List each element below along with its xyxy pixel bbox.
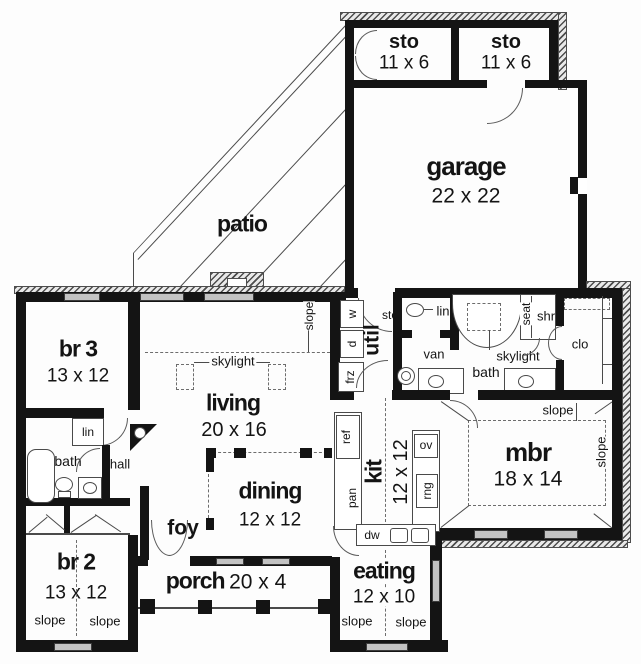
window <box>544 530 578 539</box>
pedestal-sink <box>406 303 424 317</box>
room-dims-garage: 22 x 22 <box>432 186 501 207</box>
room-dims-br3: 13 x 12 <box>47 367 109 386</box>
garage-service-door-gap <box>578 178 587 194</box>
patio-area <box>130 20 347 292</box>
ceiling-label-slope: slope <box>395 616 426 629</box>
bifold-door <box>71 515 97 533</box>
wall <box>140 486 149 560</box>
sink <box>428 375 444 388</box>
fixture-label-van: van <box>424 348 445 361</box>
room-label-bath-main: bath <box>470 365 501 379</box>
wall <box>549 20 558 88</box>
room-label-garage: garage <box>426 153 505 179</box>
wall <box>330 557 340 652</box>
porch-edge <box>138 607 336 609</box>
wall <box>345 20 354 298</box>
fixture-label-shr: shr <box>537 310 555 323</box>
patio-hatch-line <box>314 51 347 292</box>
door-arc <box>76 448 100 472</box>
wall <box>612 288 622 540</box>
tub-skylight-box <box>467 303 501 331</box>
bifold-door <box>46 514 65 530</box>
fixture-label-ref: ref <box>340 430 352 444</box>
porch-column <box>198 600 212 614</box>
fixture-label-pan: pan <box>346 488 358 508</box>
room-dims-mbr: 18 x 14 <box>494 469 563 490</box>
hatch-wall <box>622 288 631 543</box>
window <box>64 293 100 301</box>
fixture-label-seat: seat <box>520 303 532 326</box>
wall <box>345 288 358 298</box>
fixture-label-lin: lin <box>82 426 94 438</box>
fixture-label-lin: lin <box>436 305 449 318</box>
door-arc <box>487 88 523 124</box>
fireplace-circle <box>134 427 146 439</box>
ceiling-label-skylight: skylight <box>494 350 541 363</box>
fixture-label-sto: sto <box>382 309 398 321</box>
room-dims-living: 20 x 16 <box>201 420 267 440</box>
window <box>474 530 508 539</box>
fixture-label-dw: dw <box>364 529 379 541</box>
ceiling-ridge-line <box>76 540 77 636</box>
wall <box>402 330 412 338</box>
tray-hip-line <box>594 401 612 414</box>
skylight-box <box>268 364 286 390</box>
closet-shelf-line <box>602 318 612 319</box>
wall <box>206 518 214 530</box>
wall <box>16 292 26 652</box>
porch-column <box>256 600 270 614</box>
room-dims-eating: 12 x 10 <box>351 588 417 607</box>
wall <box>345 80 487 88</box>
fixture-label-clo: clo <box>572 338 589 351</box>
closet-front <box>26 533 130 535</box>
bifold-door-arc <box>548 343 562 360</box>
hatch-wall <box>558 12 567 90</box>
wall <box>128 292 140 410</box>
room-label-patio: patio <box>217 213 267 236</box>
wall <box>128 535 138 652</box>
garage-service-door <box>570 177 578 194</box>
wall <box>206 450 214 472</box>
room-label-sto2: sto <box>491 32 521 52</box>
bifold-door <box>95 514 121 532</box>
wall <box>451 26 459 86</box>
ceiling-label-slope: slope <box>341 615 372 628</box>
window <box>140 293 184 301</box>
window <box>262 558 290 565</box>
room-label-dining: dining <box>239 480 302 503</box>
ceiling-label-slope: slope <box>540 404 575 417</box>
door-arc <box>355 56 377 80</box>
room-dims-kit: 12 x 12 <box>391 439 411 505</box>
room-dims-sto1: 11 x 6 <box>379 54 429 73</box>
wall <box>190 556 332 566</box>
fixture-label-w: w <box>346 310 358 319</box>
wall <box>556 292 564 326</box>
ceiling-label-skylight: skylight <box>209 355 256 368</box>
wall <box>26 408 104 418</box>
sink-basin <box>411 528 429 543</box>
fixture-label-rng: rng <box>421 482 433 499</box>
room-label-sto1: sto <box>389 32 419 52</box>
window <box>432 560 440 602</box>
bifold-door <box>29 517 48 533</box>
wall <box>549 80 587 88</box>
wall <box>64 506 70 534</box>
wall-dashed <box>208 474 209 518</box>
fixture-label-ov: ov <box>420 439 433 451</box>
fixture-label-d: d <box>346 341 358 348</box>
wall <box>440 330 452 338</box>
ceiling-label-slope: slope <box>34 614 65 627</box>
tray-hip-line <box>441 505 470 528</box>
room-label-util: util <box>362 324 383 356</box>
fixture-label-frz: frz <box>344 370 356 383</box>
patio-hatch-line <box>244 51 347 292</box>
wall <box>578 80 587 272</box>
leader-line <box>489 330 490 350</box>
skylight-box <box>176 364 194 390</box>
tray-hip-line <box>593 513 612 528</box>
ceiling-label-slope: slope <box>595 436 608 467</box>
hatch-wall <box>430 540 628 548</box>
sink-basin <box>390 528 408 543</box>
wall <box>300 448 312 458</box>
room-label-hall: hall <box>110 458 130 471</box>
room-dims-dining: 12 x 12 <box>239 511 301 530</box>
wall <box>324 448 332 458</box>
sink <box>518 375 534 388</box>
window <box>366 643 408 651</box>
toilet-bowl <box>401 371 411 381</box>
window <box>54 643 92 651</box>
room-label-porch-group: porch 20 x 4 <box>166 570 287 593</box>
sink <box>83 482 97 494</box>
window <box>204 293 254 301</box>
wall <box>430 528 622 540</box>
door-arc <box>355 30 377 54</box>
wall <box>478 390 612 400</box>
wall <box>102 445 110 502</box>
leader-line <box>576 403 577 421</box>
floor-plan: sto 11 x 6 sto 11 x 6 garage 22 x 22 pat… <box>0 0 641 664</box>
room-dims-sto2: 11 x 6 <box>481 54 531 73</box>
patio-hatch-line <box>174 51 347 292</box>
room-label-br3: br 3 <box>59 338 97 361</box>
room-label-eating: eating <box>351 560 417 583</box>
porch-column <box>140 599 155 614</box>
room-label-foy: foy <box>167 518 199 539</box>
closet-shelf-line <box>602 296 603 384</box>
room-label-kit: kit <box>363 460 386 484</box>
leader-line <box>308 328 309 352</box>
wall <box>234 448 246 458</box>
bathtub <box>27 449 55 503</box>
closet-shelf-line <box>602 364 612 365</box>
ceiling-label-slope: slope <box>89 615 120 628</box>
window <box>216 558 244 565</box>
door-arc <box>100 418 128 446</box>
room-dims-porch: 20 x 4 <box>229 571 286 594</box>
leader-line <box>424 309 433 310</box>
room-label-living: living <box>206 392 260 415</box>
ceiling-label-slope: slope <box>303 302 315 331</box>
room-label-porch: porch <box>166 568 225 594</box>
room-label-mbr: mbr <box>505 439 551 465</box>
wall <box>392 390 450 400</box>
toilet-tank <box>58 491 71 498</box>
toilet <box>55 477 73 492</box>
opening-header-line <box>208 452 332 453</box>
wall <box>556 360 564 390</box>
